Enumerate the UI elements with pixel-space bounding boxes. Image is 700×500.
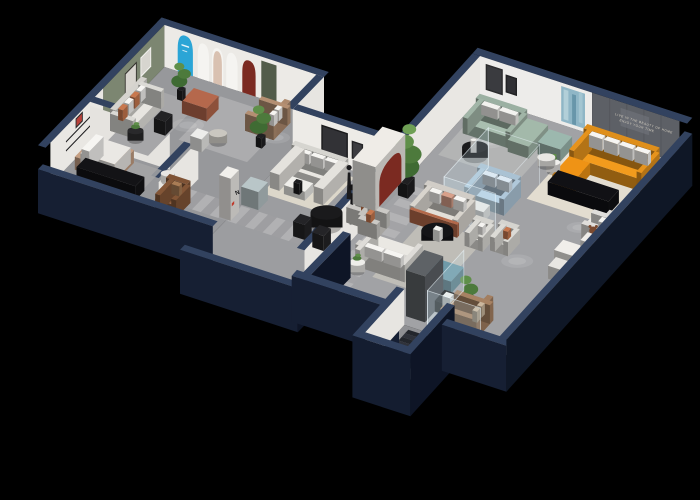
magazine-white — [433, 226, 443, 243]
painting-teal-streak1 — [564, 89, 569, 121]
art-frame-dark-1 — [486, 64, 503, 96]
table-glass-round — [209, 129, 227, 147]
coffee-table-white-round — [537, 153, 555, 170]
niche-arch-1 — [198, 43, 209, 81]
niche-arch-3 — [226, 53, 237, 91]
niche-arch-poster-photo — [213, 51, 222, 86]
painting-teal-streak3 — [579, 92, 583, 123]
feature-wall-panel-line4 — [661, 115, 662, 157]
showroom-render: LIVE IN THE BEAUTY OF HOMEENJOY YOUR TIM… — [0, 0, 700, 500]
art-frame-dark-2 — [506, 74, 517, 96]
coffee-table-decor — [294, 179, 303, 195]
niche-arch-red — [242, 60, 255, 97]
painting-teal-streak2 — [572, 94, 576, 125]
floor-spot — [501, 254, 533, 267]
floorplan-isometric-render: LIVE IN THE BEAUTY OF HOMEENJOY YOUR TIM… — [0, 0, 700, 500]
